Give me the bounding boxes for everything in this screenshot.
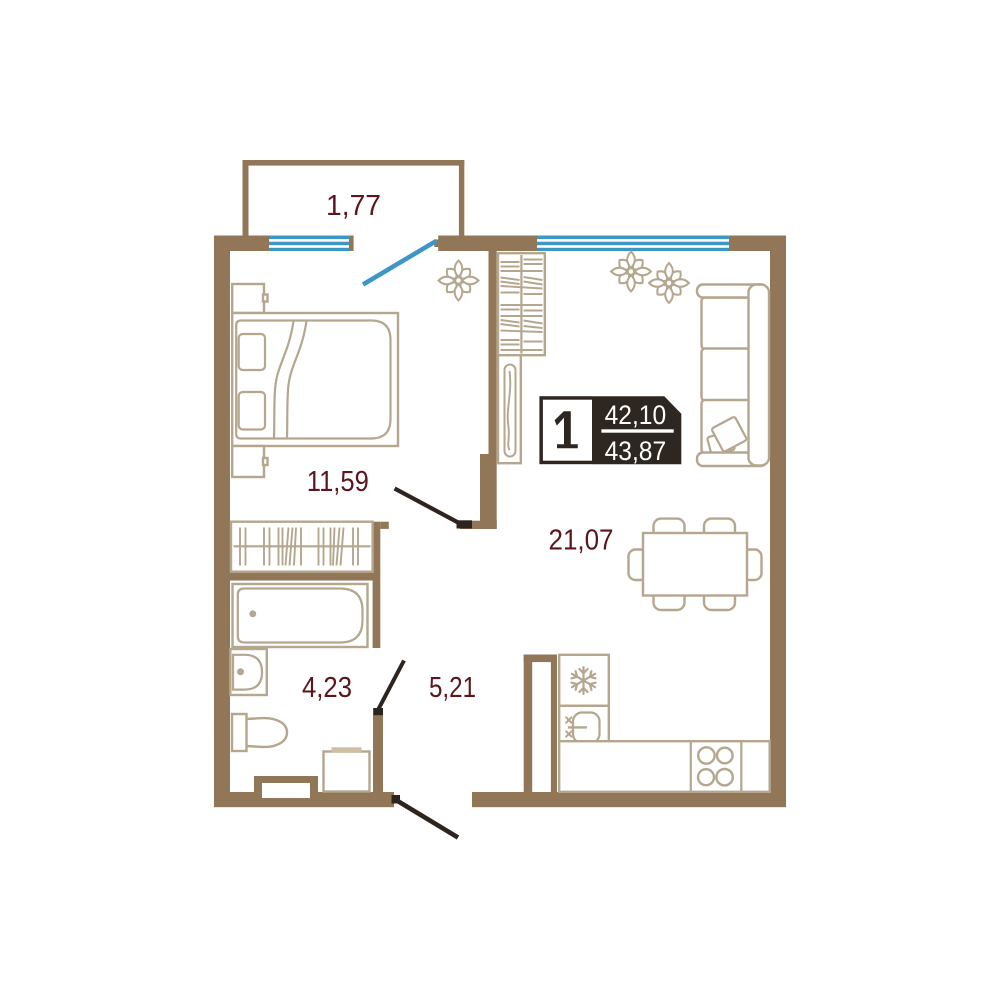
svg-text:11,59: 11,59 <box>307 466 369 498</box>
svg-text:42,10: 42,10 <box>605 400 667 430</box>
svg-text:5,21: 5,21 <box>429 672 476 704</box>
svg-text:4,23: 4,23 <box>302 672 352 704</box>
svg-text:21,07: 21,07 <box>549 525 614 557</box>
svg-text:1,77: 1,77 <box>326 190 381 222</box>
svg-text:43,87: 43,87 <box>605 436 667 466</box>
